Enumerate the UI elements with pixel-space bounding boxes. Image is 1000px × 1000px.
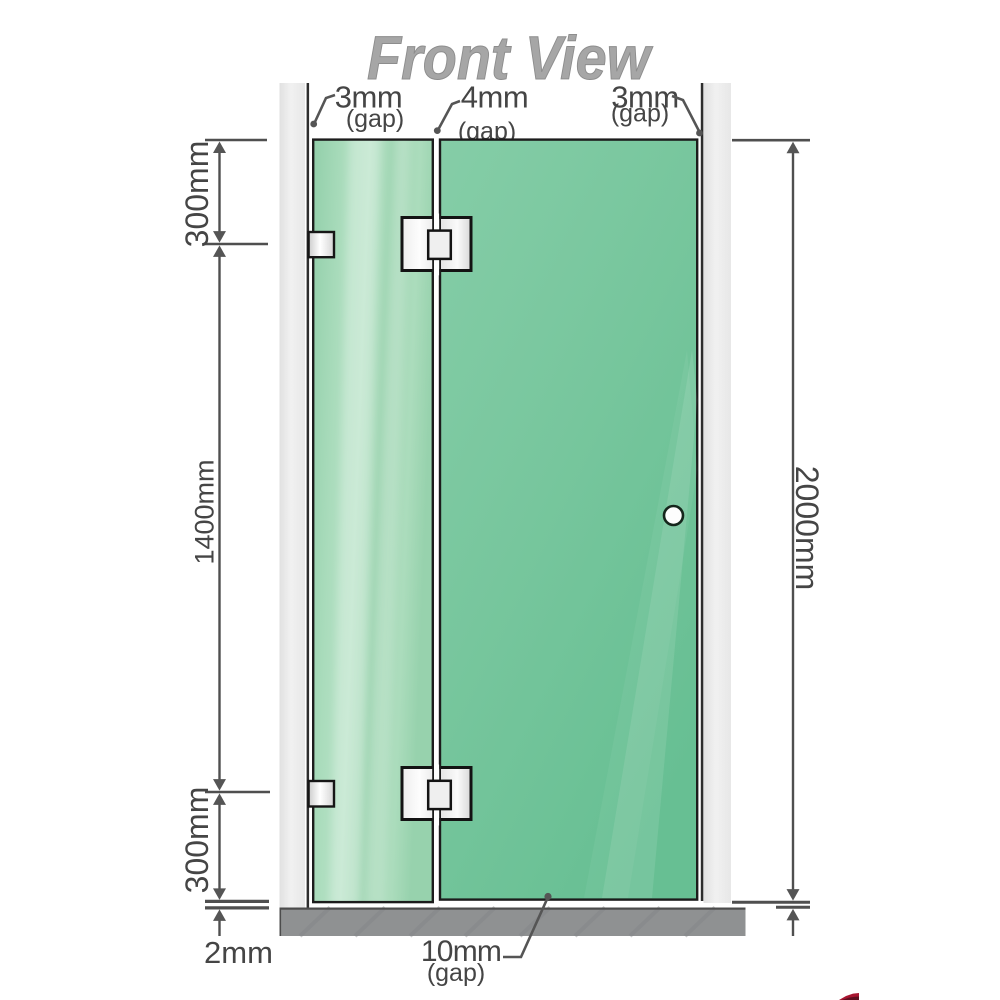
svg-text:(gap): (gap) xyxy=(346,105,404,133)
svg-text:2000mm: 2000mm xyxy=(789,466,825,591)
svg-text:4mm: 4mm xyxy=(461,80,528,115)
svg-text:(gap): (gap) xyxy=(611,100,669,128)
svg-text:300mm: 300mm xyxy=(179,787,215,894)
svg-text:300mm: 300mm xyxy=(179,141,215,248)
svg-text:2mm: 2mm xyxy=(204,935,273,970)
svg-text:1400mm: 1400mm xyxy=(190,459,220,564)
svg-text:(gap): (gap) xyxy=(427,959,485,987)
